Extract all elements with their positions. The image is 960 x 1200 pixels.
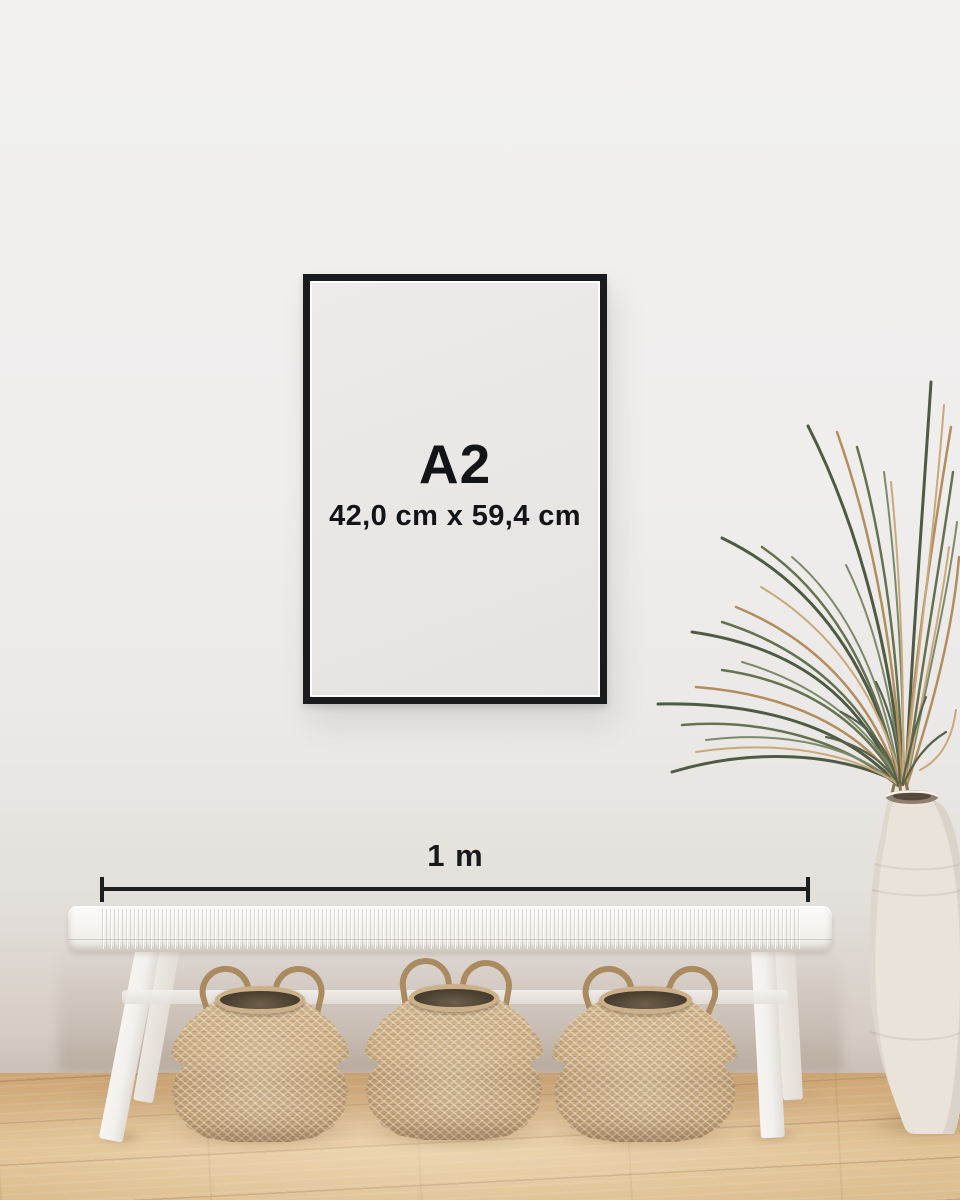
scale-bar-label: 1 m [102,838,809,874]
scale-bar-endcap-left [100,877,104,902]
basket-body [170,996,350,1142]
basket-rim [215,986,305,1014]
floor-vase [866,782,960,1137]
basket-right [552,966,738,1142]
basket-rim [599,986,692,1014]
basket-left [170,966,350,1142]
basket-rim [409,984,499,1012]
dried-palm-plant [600,330,960,815]
basket-middle [364,964,544,1140]
bench-seat [68,906,832,952]
basket-body [364,994,544,1140]
basket-body [552,996,738,1142]
frame-dimensions-label: 42,0 cm x 59,4 cm [329,502,581,531]
picture-frame: A2 42,0 cm x 59,4 cm [303,274,607,704]
frame-size-label: A2 [419,437,491,492]
size-guide-scene: { "frame": { "size_label": "A2", "dimens… [0,0,960,1200]
scale-bar-line [102,887,809,891]
scale-bar-endcap-right [806,877,810,902]
